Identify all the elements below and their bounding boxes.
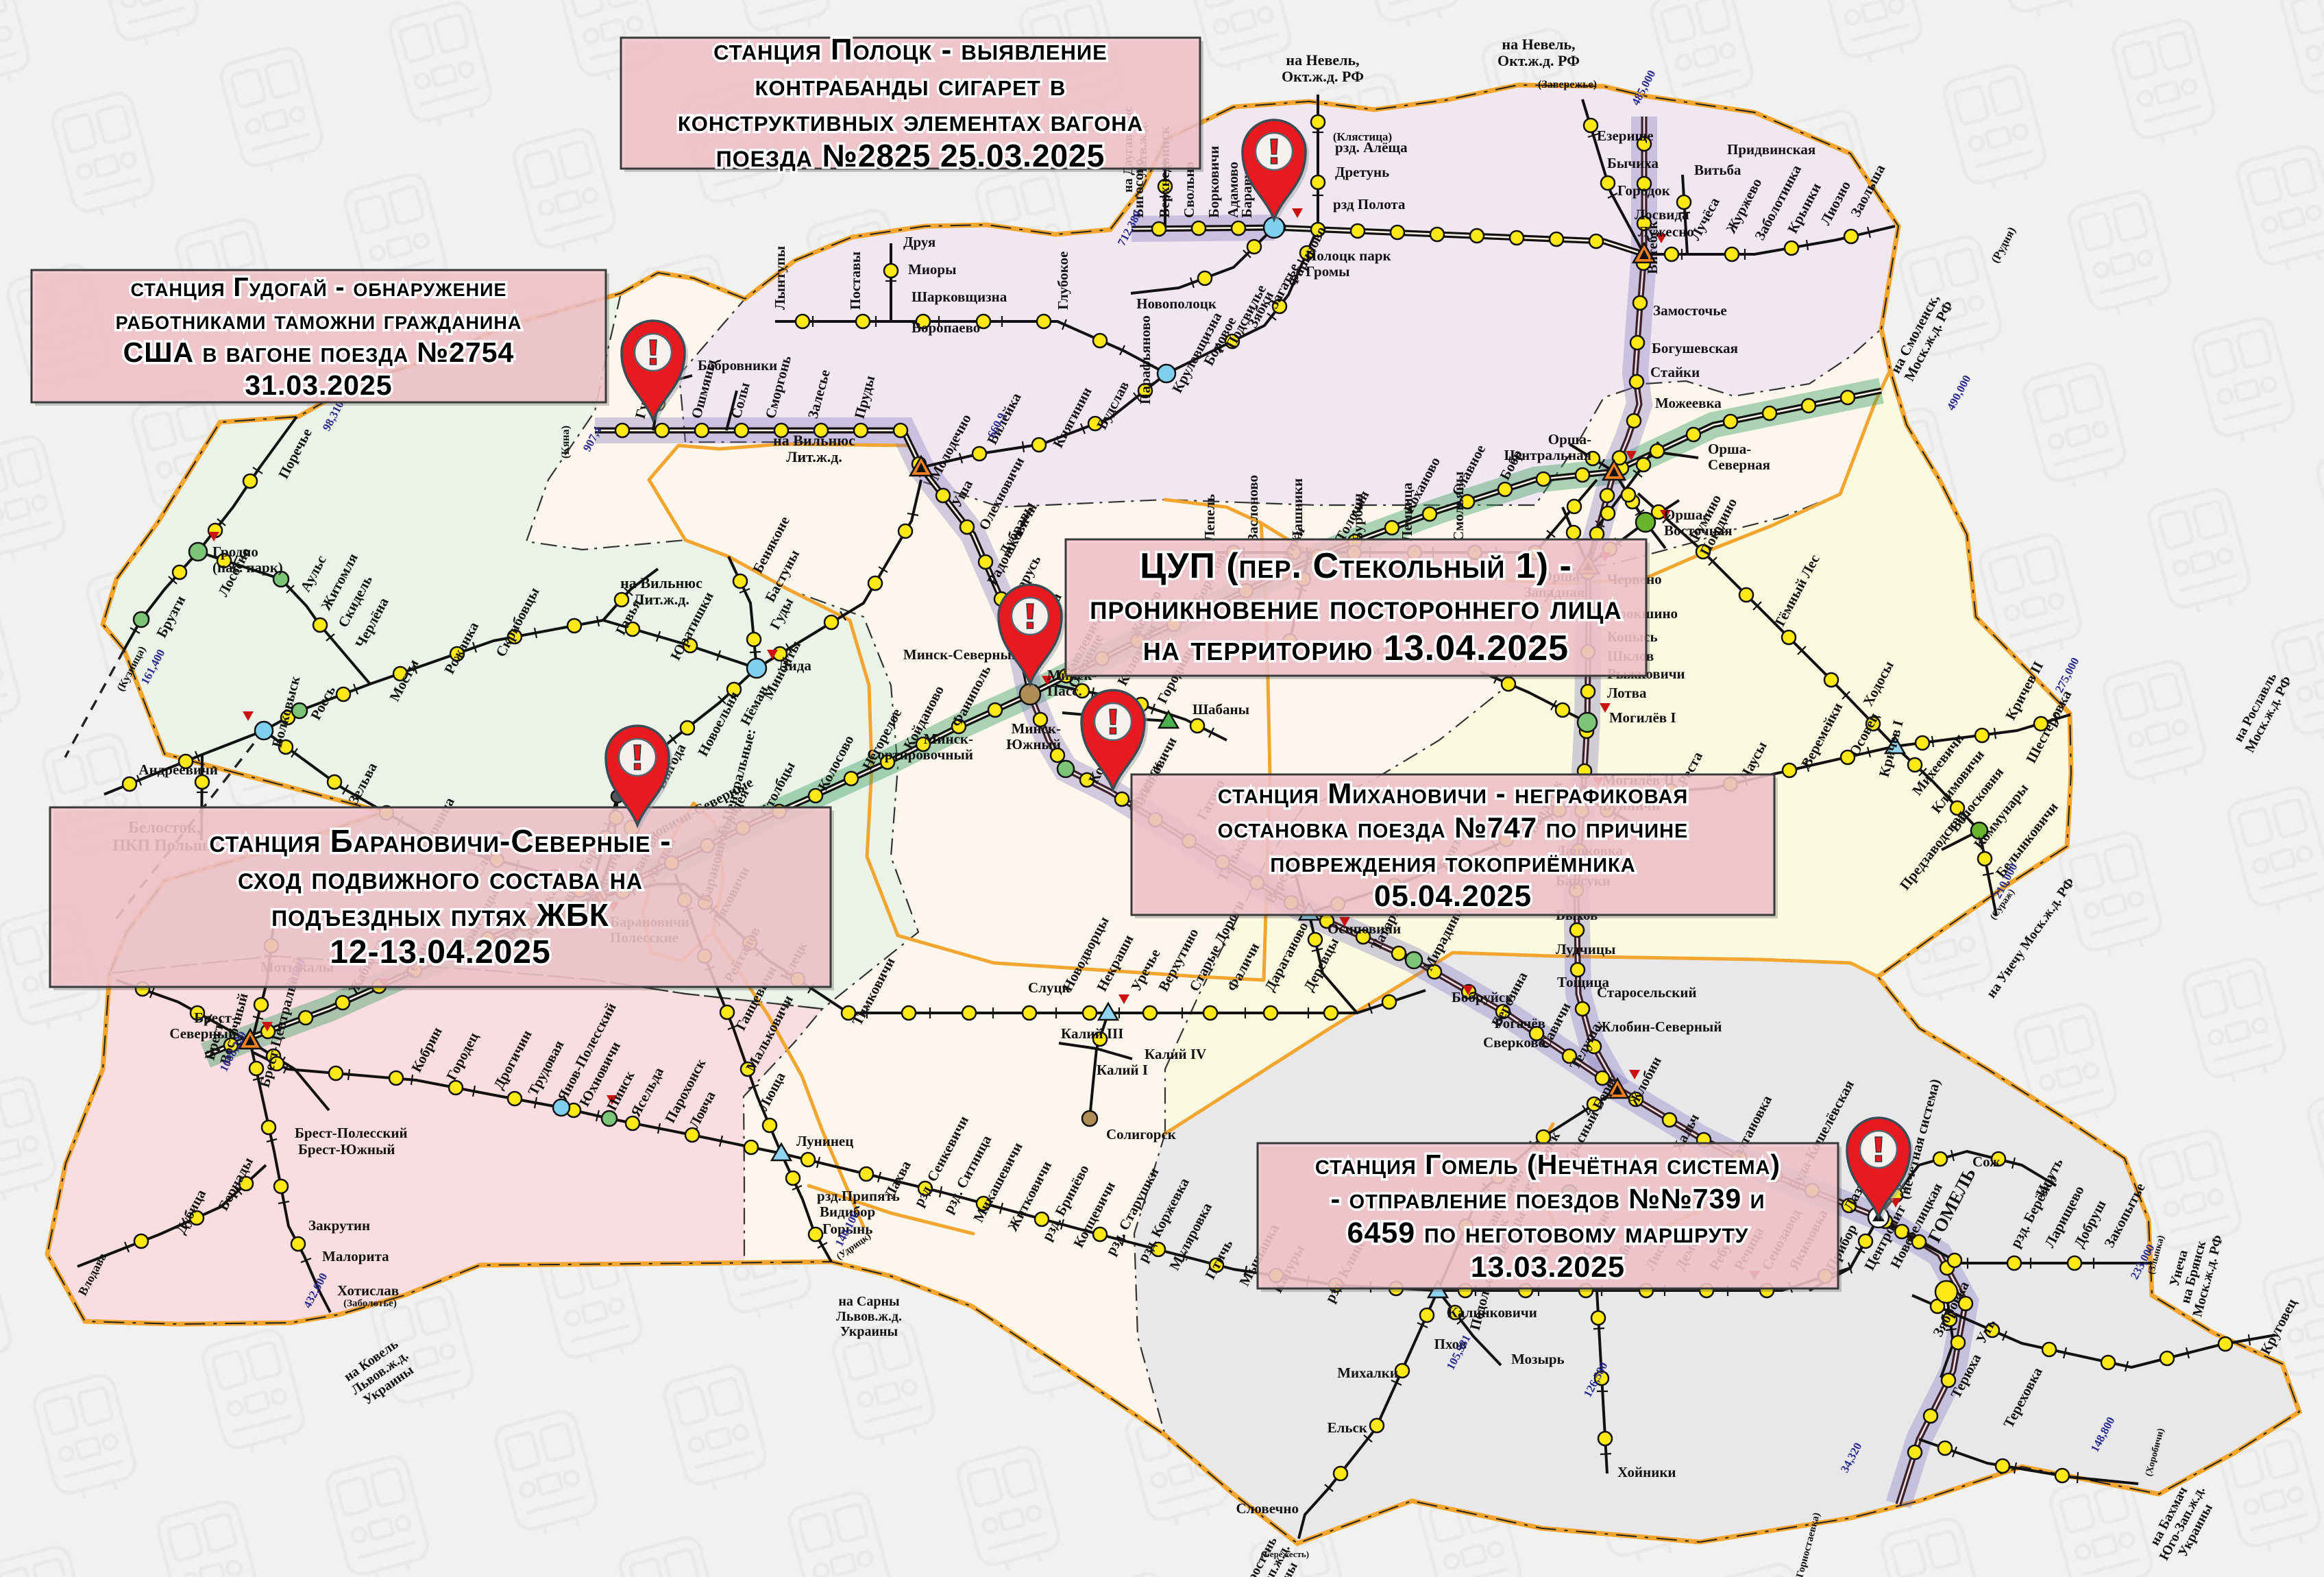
- svg-text:работниками таможни гражданина: работниками таможни гражданина: [116, 306, 522, 335]
- svg-text:31.03.2025: 31.03.2025: [245, 369, 392, 401]
- svg-text:13.03.2025: 13.03.2025: [1471, 1251, 1625, 1284]
- svg-text:Южный: Южный: [1006, 736, 1061, 753]
- svg-text:проникновение постороннего лиц: проникновение постороннего лица: [1090, 588, 1622, 626]
- svg-text:Ельск: Ельск: [1328, 1419, 1368, 1436]
- svg-text:12-13.04.2025: 12-13.04.2025: [330, 934, 551, 970]
- svg-text:Бурбин: Бурбин: [1349, 493, 1366, 541]
- svg-text:6459 по неготовому маршруту: 6459 по неготовому маршруту: [1347, 1217, 1749, 1249]
- svg-text:станция Гудогай - обнаружение: станция Гудогай - обнаружение: [130, 273, 506, 302]
- svg-text:Хотислав: Хотислав: [337, 1282, 399, 1299]
- svg-text:Лунинец: Лунинец: [796, 1133, 853, 1149]
- svg-text:05.04.2025: 05.04.2025: [1374, 879, 1532, 913]
- svg-text:Глубокое: Глубокое: [1055, 252, 1071, 310]
- svg-text:Северная: Северная: [1708, 456, 1770, 473]
- svg-text:Украины: Украины: [840, 1324, 898, 1339]
- svg-text:Солигорск: Солигорск: [1106, 1126, 1177, 1142]
- svg-text:рзд Полота: рзд Полота: [1333, 196, 1406, 212]
- svg-text:сход подвижного состава на: сход подвижного состава на: [238, 860, 643, 896]
- svg-text:Чашники: Чашники: [1289, 478, 1306, 541]
- svg-text:Замосточье: Замосточье: [1653, 302, 1727, 319]
- svg-text:Парафьяново: Парафьяново: [1137, 315, 1153, 404]
- svg-text:Бычиха: Бычиха: [1607, 155, 1659, 171]
- svg-text:Калинковичи: Калинковичи: [1447, 1304, 1537, 1321]
- svg-text:Окт.ж.д. РФ: Окт.ж.д. РФ: [1282, 68, 1364, 85]
- svg-text:Лепель: Лепель: [1201, 494, 1218, 541]
- svg-text:Брест-Южный: Брест-Южный: [298, 1141, 395, 1158]
- svg-text:Витьба: Витьба: [1694, 162, 1741, 178]
- svg-text:на Вильнюс: на Вильнюс: [620, 574, 702, 591]
- svg-text:Заслоново: Заслоново: [1245, 475, 1261, 541]
- svg-text:станция Барановичи-Северные -: станция Барановичи-Северные -: [209, 823, 671, 859]
- svg-text:Окт.ж.д. РФ: Окт.ж.д. РФ: [1497, 52, 1580, 69]
- svg-text:контрабанды сигарет в: контрабанды сигарет в: [755, 69, 1066, 102]
- svg-text:Центральная: Центральная: [1504, 447, 1591, 463]
- svg-text:Громы: Громы: [1306, 263, 1350, 280]
- svg-text:остановка поезда №747 по причи: остановка поезда №747 по причине: [1218, 811, 1689, 844]
- svg-text:- отправление поездов №№739 и: - отправление поездов №№739 и: [1331, 1183, 1765, 1214]
- svg-text:Лудчицы: Лудчицы: [1556, 941, 1615, 957]
- svg-text:Калий I: Калий I: [1097, 1062, 1148, 1078]
- svg-text:на Невель,: на Невель,: [1286, 51, 1359, 69]
- svg-text:Мозырь: Мозырь: [1511, 1351, 1565, 1367]
- svg-text:на Вильнюс: на Вильнюс: [773, 432, 855, 449]
- svg-text:Львов.ж.д.: Львов.ж.д.: [836, 1309, 902, 1324]
- svg-text:Придвинская: Придвинская: [1727, 141, 1815, 158]
- svg-text:станция Полоцк - выявление: станция Полоцк - выявление: [713, 33, 1108, 66]
- svg-text:Миоры: Миоры: [908, 261, 957, 278]
- svg-text:Сож: Сож: [1972, 1153, 2001, 1170]
- svg-text:Шарковщизна: Шарковщизна: [912, 289, 1007, 305]
- svg-text:Старосельский: Старосельский: [1597, 984, 1697, 1001]
- svg-text:(Бережесть): (Бережесть): [1261, 1549, 1309, 1559]
- svg-text:рзд.Припять: рзд.Припять: [817, 1188, 900, 1204]
- svg-text:Лемница: Лемница: [1399, 482, 1415, 541]
- svg-text:(Кяна): (Кяна): [560, 426, 572, 459]
- svg-text:повреждения токоприёмника: повреждения токоприёмника: [1270, 846, 1635, 878]
- svg-text:подъездных путях ЖБК: подъездных путях ЖБК: [271, 897, 609, 933]
- svg-text:Хойники: Хойники: [1617, 1464, 1676, 1480]
- svg-text:Малорита: Малорита: [322, 1248, 389, 1264]
- svg-text:(Завережье): (Завережье): [1538, 79, 1597, 90]
- svg-text:Закрутин: Закрутин: [308, 1217, 370, 1234]
- svg-text:Дретунь: Дретунь: [1335, 164, 1389, 180]
- svg-text:Бобровники: Бобровники: [698, 357, 777, 374]
- svg-text:Минск-: Минск-: [1012, 720, 1061, 737]
- svg-text:Шабаны: Шабаны: [1192, 701, 1249, 718]
- svg-text:Андреевичи: Андреевичи: [138, 761, 218, 778]
- svg-text:на Сарны: на Сарны: [838, 1294, 900, 1309]
- svg-text:Лосвида: Лосвида: [1635, 206, 1689, 223]
- svg-text:на Невель,: на Невель,: [1502, 36, 1575, 53]
- svg-text:Калий IV: Калий IV: [1145, 1046, 1206, 1062]
- svg-text:Поставы: Поставы: [847, 252, 864, 310]
- svg-text:на территорию 13.04.2025: на территорию 13.04.2025: [1143, 628, 1569, 668]
- svg-text:Богушевская: Богушевская: [1652, 340, 1738, 356]
- svg-text:Калий III: Калий III: [1061, 1025, 1123, 1042]
- svg-text:Орша-: Орша-: [1548, 431, 1591, 448]
- svg-text:ЦУП (пер. Стекольный 1) -: ЦУП (пер. Стекольный 1) -: [1140, 546, 1572, 586]
- svg-text:Михалки: Михалки: [1337, 1365, 1398, 1381]
- svg-text:рзд. Алёща: рзд. Алёща: [1335, 139, 1408, 156]
- svg-text:Жлобин-Северный: Жлобин-Северный: [1597, 1018, 1722, 1035]
- svg-text:конструктивных элементах вагон: конструктивных элементах вагона: [678, 104, 1143, 138]
- svg-text:Езерище: Езерище: [1597, 127, 1654, 144]
- svg-text:Лит.ж.д.: Лит.ж.д.: [786, 448, 842, 465]
- svg-text:Друя: Друя: [903, 234, 935, 250]
- svg-text:Словечно: Словечно: [1236, 1500, 1299, 1517]
- svg-text:поезда №2825 25.03.2025: поезда №2825 25.03.2025: [716, 138, 1105, 173]
- svg-text:станция Гомель (Нечётная систе: станция Гомель (Нечётная система): [1315, 1149, 1781, 1180]
- svg-text:Лотва: Лотва: [1607, 685, 1647, 701]
- svg-text:Витебск: Витебск: [1644, 220, 1661, 274]
- svg-text:Новополоцк: Новополоцк: [1136, 295, 1217, 312]
- svg-text:Стайки: Стайки: [1650, 364, 1700, 380]
- svg-text:Орша-: Орша-: [1708, 441, 1751, 457]
- svg-text:США в вагоне поезда №2754: США в вагоне поезда №2754: [123, 337, 515, 368]
- svg-text:(Заболотье): (Заболотье): [343, 1298, 397, 1309]
- svg-text:Лынтупы: Лынтупы: [772, 246, 788, 310]
- svg-text:Борковичи: Борковичи: [1206, 146, 1222, 218]
- svg-text:Можеевка: Можеевка: [1655, 395, 1722, 411]
- svg-text:Минск-: Минск-: [924, 731, 973, 747]
- svg-text:Брест-Полесский: Брест-Полесский: [295, 1125, 408, 1141]
- svg-text:станция Михановичи - неграфико: станция Михановичи - неграфиковая: [1218, 777, 1688, 809]
- svg-text:Воропаево: Воропаево: [912, 319, 980, 336]
- svg-text:Могилёв I: Могилёв I: [1609, 709, 1676, 726]
- svg-text:Минск-Северный: Минск-Северный: [903, 646, 1020, 663]
- svg-text:Городок: Городок: [1617, 182, 1671, 199]
- svg-text:Смольяны: Смольяны: [1450, 472, 1467, 541]
